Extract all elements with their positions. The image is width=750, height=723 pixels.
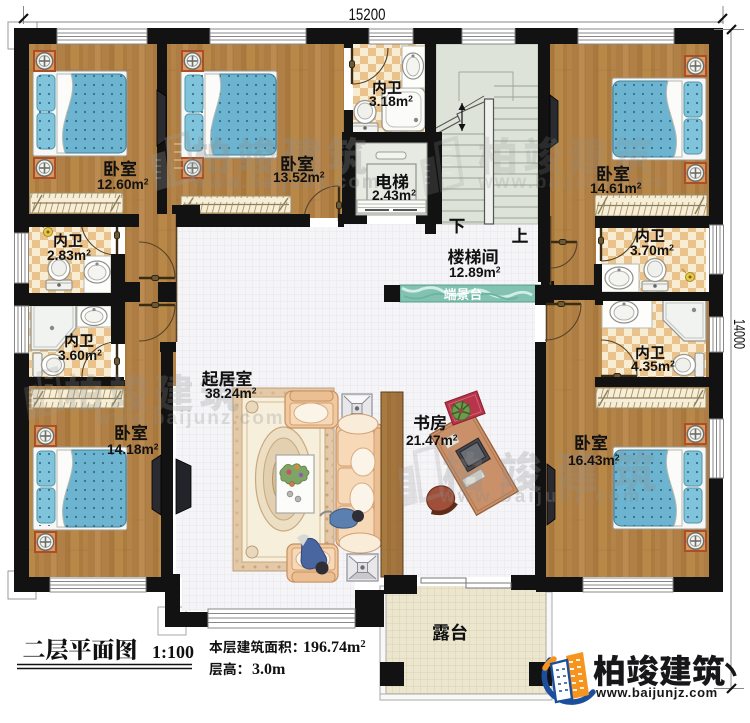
svg-text:21.47m2: 21.47m2 — [406, 433, 458, 448]
svg-text:2.83m2: 2.83m2 — [47, 248, 91, 263]
svg-text:www.baijunjz.com: www.baijunjz.com — [595, 685, 718, 700]
svg-text:15200: 15200 — [349, 6, 386, 24]
svg-text:16.43m2: 16.43m2 — [568, 453, 620, 468]
svg-text:3.0m: 3.0m — [252, 661, 286, 678]
svg-text:14.18m2: 14.18m2 — [107, 442, 159, 457]
svg-text:12.60m2: 12.60m2 — [97, 177, 149, 192]
svg-text:196.74m2: 196.74m2 — [303, 639, 366, 656]
svg-text:12.89m2: 12.89m2 — [449, 265, 501, 280]
svg-text:3.60m2: 3.60m2 — [58, 348, 102, 363]
svg-text:3.70m2: 3.70m2 — [630, 243, 674, 258]
svg-text:13.52m2: 13.52m2 — [273, 170, 325, 185]
svg-text:14.61m2: 14.61m2 — [590, 181, 642, 196]
svg-text:38.24m2: 38.24m2 — [205, 386, 257, 401]
svg-text:2.43m2: 2.43m2 — [372, 188, 416, 203]
svg-text:14000: 14000 — [730, 319, 747, 349]
svg-text:www.baijunz.com: www.baijunz.com — [439, 485, 643, 506]
svg-text:4.35m2: 4.35m2 — [631, 359, 675, 374]
svg-text:1:100: 1:100 — [152, 642, 194, 662]
svg-text:3.18m2: 3.18m2 — [369, 94, 413, 109]
